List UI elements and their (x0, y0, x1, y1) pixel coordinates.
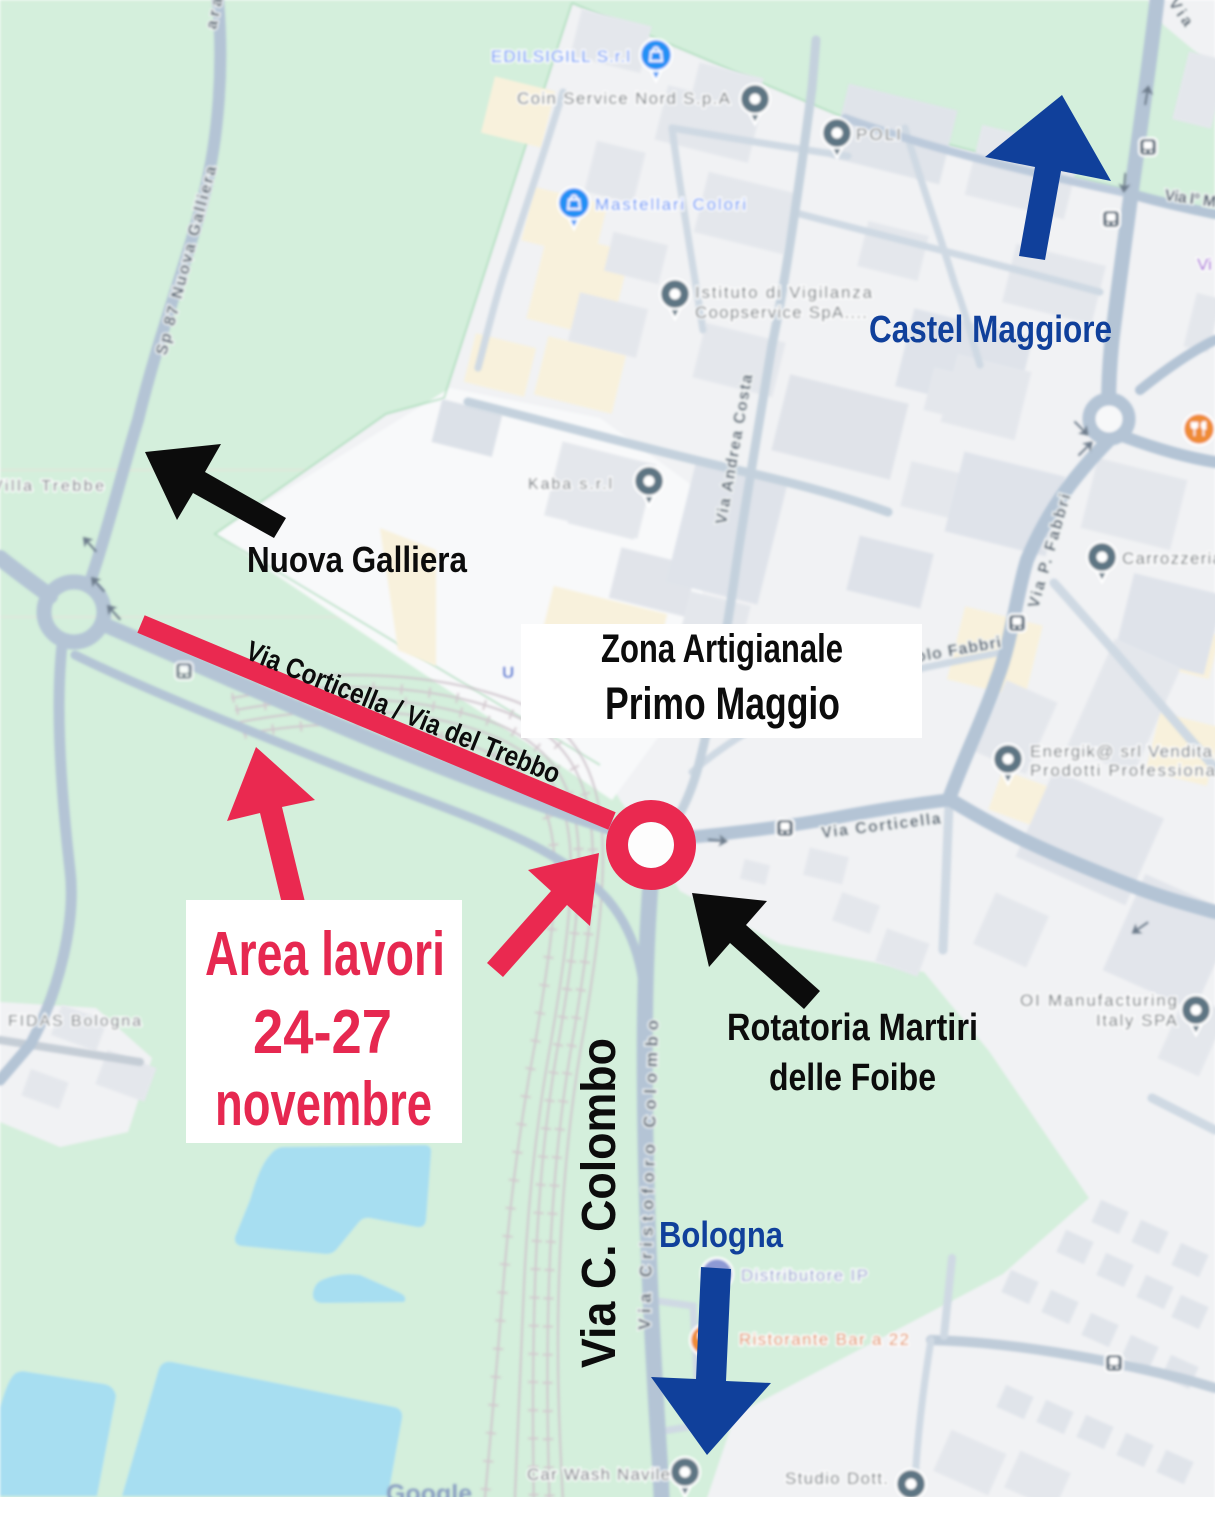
svg-text:Coopservice SpA....: Coopservice SpA.... (695, 303, 867, 322)
svg-text:Prodotti Professiona: Prodotti Professiona (1030, 761, 1215, 780)
svg-text:Castel Maggiore: Castel Maggiore (869, 309, 1112, 351)
svg-text:EDILSIGILL S.r.l: EDILSIGILL S.r.l (491, 47, 630, 66)
svg-text:Coin Service Nord S.p.A: Coin Service Nord S.p.A (517, 89, 731, 108)
svg-text:Istituto di Vigilanza: Istituto di Vigilanza (695, 283, 873, 302)
svg-text:Car Wash Navile: Car Wash Navile (527, 1465, 670, 1484)
svg-text:novembre: novembre (215, 1070, 432, 1139)
svg-text:FIDAS Bologna: FIDAS Bologna (8, 1013, 141, 1030)
svg-text:U: U (502, 663, 514, 682)
svg-text:delle Foibe: delle Foibe (769, 1057, 936, 1099)
svg-text:24-27: 24-27 (253, 998, 392, 1067)
svg-text:Studio Dott.: Studio Dott. (785, 1469, 888, 1488)
svg-text:Via C. Colombo: Via C. Colombo (573, 1038, 626, 1368)
svg-text:OI Manufacturing: OI Manufacturing (1020, 991, 1177, 1010)
svg-text:Distributore IP: Distributore IP (741, 1266, 868, 1285)
svg-text:Primo Maggio: Primo Maggio (605, 678, 840, 729)
svg-text:Mastellari Colori: Mastellari Colori (595, 195, 746, 214)
svg-text:Italy SPA: Italy SPA (1096, 1011, 1178, 1030)
svg-text:Carrozzeria: Carrozzeria (1122, 549, 1215, 568)
svg-text:Nuova Galliera: Nuova Galliera (247, 539, 468, 580)
svg-text:Energik@ srl Vendita: Energik@ srl Vendita (1030, 742, 1213, 761)
svg-text:Kaba s.r.l: Kaba s.r.l (528, 476, 612, 493)
svg-text:Area lavori: Area lavori (205, 920, 445, 989)
svg-text:Ristorante Bar a 22: Ristorante Bar a 22 (739, 1330, 909, 1349)
svg-text:Bologna: Bologna (659, 1214, 784, 1255)
svg-text:Zona Artigianale: Zona Artigianale (601, 627, 843, 671)
svg-text:Vi: Vi (1197, 255, 1212, 274)
svg-text:Rotatoria Martiri: Rotatoria Martiri (727, 1007, 978, 1049)
